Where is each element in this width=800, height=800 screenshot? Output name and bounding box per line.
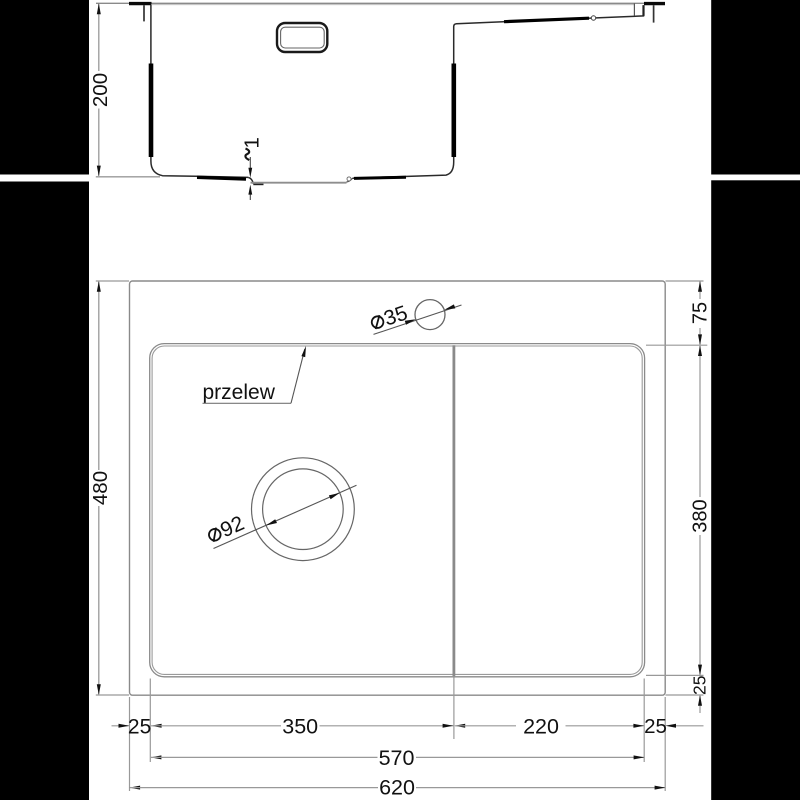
svg-text:380: 380 xyxy=(689,499,711,532)
svg-text:200: 200 xyxy=(89,73,112,107)
svg-text:220: 220 xyxy=(523,714,559,738)
svg-text:620: 620 xyxy=(379,776,415,800)
svg-text:480: 480 xyxy=(89,471,112,505)
svg-text:570: 570 xyxy=(379,746,415,770)
svg-text:25: 25 xyxy=(689,676,709,695)
svg-text:75: 75 xyxy=(689,302,711,324)
svg-text:350: 350 xyxy=(282,714,318,738)
svg-text:25: 25 xyxy=(644,715,667,738)
svg-text:25: 25 xyxy=(128,715,151,738)
svg-text:1: 1 xyxy=(241,137,264,148)
svg-text:przelew: przelew xyxy=(203,381,276,404)
